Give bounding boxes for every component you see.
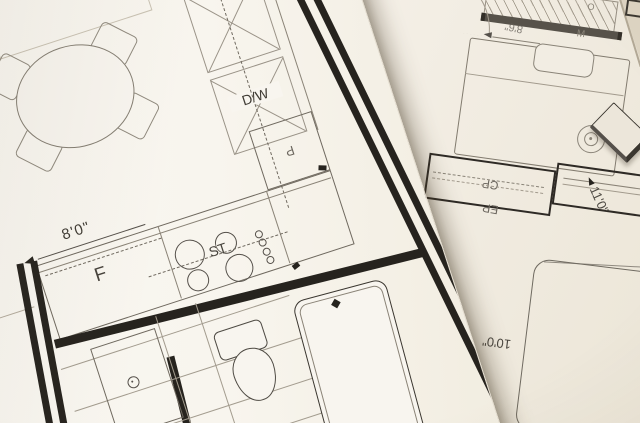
dimension-arrow-icon — [483, 31, 492, 38]
dimension-room-width: 10'0" — [481, 334, 511, 352]
room-outline — [514, 258, 640, 423]
kitchen-plan-sheet: D/W P 8'0" F ST — [0, 0, 545, 423]
corner-drawing-fragment — [625, 0, 640, 18]
wall-thick — [30, 261, 86, 423]
drain-center — [131, 380, 134, 383]
plan-glyph-m: M — [576, 28, 586, 40]
plan-glyph-o: O — [587, 1, 595, 12]
dimension-arrow-icon — [586, 176, 595, 186]
drain-icon — [126, 375, 141, 390]
scene: 8'6" O M CP EP 11'0" 10'0" — [0, 0, 640, 423]
floorplan-photo: 8'6" O M CP EP 11'0" 10'0" — [0, 0, 640, 423]
